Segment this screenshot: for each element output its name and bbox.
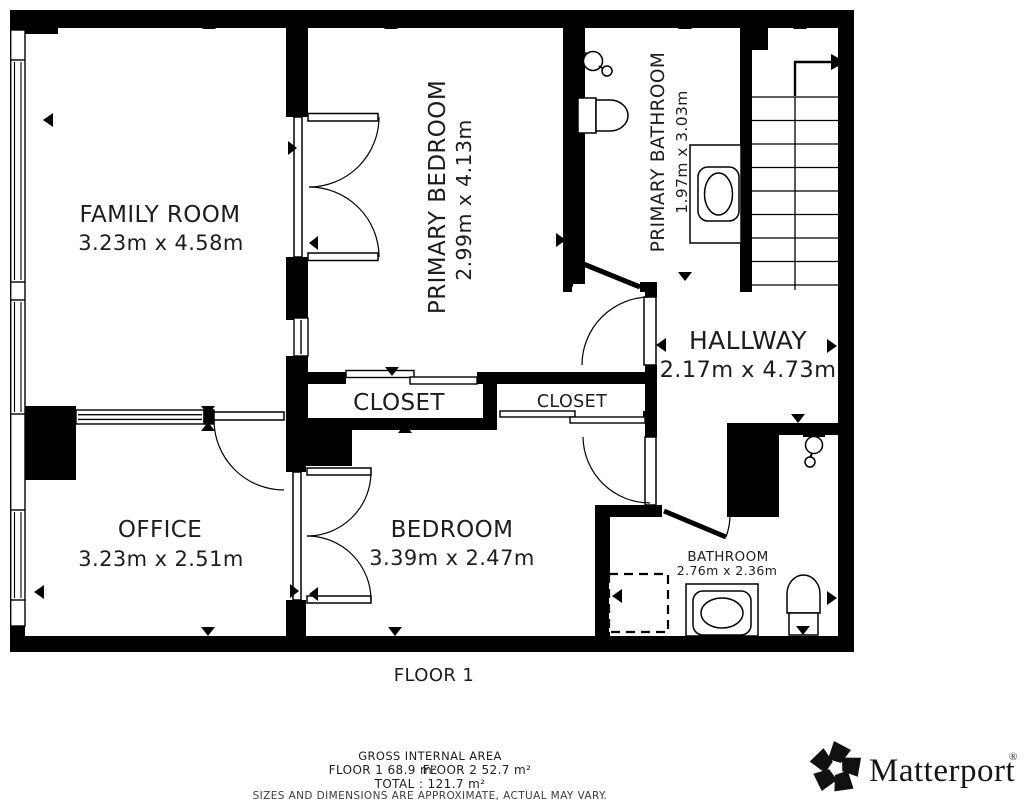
room-label-hallway: HALLWAY [689, 326, 807, 355]
gross-area-title: GROSS INTERNAL AREA [358, 749, 502, 763]
registered-mark: ® [1009, 751, 1018, 763]
room-label-primary-bedroom: PRIMARY BEDROOM [425, 80, 451, 314]
room-dims-office: 3.23m x 2.51m [78, 547, 243, 571]
room-label-closet-small: CLOSET [537, 392, 607, 412]
primary-bedroom-door [582, 297, 656, 365]
disclaimer: SIZES AND DIMENSIONS ARE APPROXIMATE, AC… [253, 790, 608, 800]
total-area: TOTAL : 121.7 m² [374, 777, 486, 791]
shower-head-icon [584, 52, 613, 77]
floor-plan-page: FAMILY ROOM 3.23m x 4.58m PRIMARY BEDROO… [0, 0, 1024, 800]
office-window [76, 410, 204, 424]
bathroom-door [664, 511, 730, 537]
matterport-pinwheel-icon [808, 741, 866, 799]
french-door-primary-bedroom [294, 114, 379, 261]
matterport-logo: Matterport ® [808, 741, 1018, 799]
marker-down-icon [791, 414, 805, 423]
room-dims-primary-bedroom: 2.99m x 4.13m [452, 119, 476, 281]
floor-caption: FLOOR 1 [394, 665, 475, 686]
interior-windows [76, 318, 308, 424]
floor2-area: FLOOR 2 52.7 m² [423, 763, 532, 777]
sink-vanity-icon-bathroom [686, 584, 758, 636]
sink-vanity-icon-primary [690, 145, 741, 243]
room-dims-family-room: 3.23m x 4.58m [78, 231, 243, 255]
shower-head-icon-bathroom [803, 436, 825, 467]
matterport-wordmark: Matterport [869, 753, 1015, 789]
room-dims-hallway: 2.17m x 4.73m [660, 357, 837, 383]
marker-left-icon [656, 338, 666, 352]
office-door [214, 412, 284, 490]
marker-down-icon [388, 627, 402, 636]
french-door-bedroom [293, 468, 371, 603]
marker-right-icon [827, 339, 837, 353]
marker-left-icon [309, 236, 318, 250]
shower-tray-icon [609, 574, 668, 632]
marker-down-icon [201, 627, 215, 636]
marker-down-icon [678, 272, 692, 281]
room-dims-primary-bathroom: 1.97m x 3.03m [673, 90, 691, 213]
left-window-wall [10, 30, 25, 626]
room-dims-bathroom: 2.76m x 2.36m [677, 563, 778, 578]
floor-plan-drawing: FAMILY ROOM 3.23m x 4.58m PRIMARY BEDROO… [0, 0, 1024, 800]
bedroom-door [583, 437, 656, 505]
room-label-office: OFFICE [118, 517, 202, 543]
floor1-area: FLOOR 1 68.9 m² [329, 763, 438, 777]
room-label-bedroom: BEDROOM [391, 517, 514, 543]
staircase [752, 54, 846, 290]
toilet-icon-primary [578, 98, 628, 133]
room-dims-bedroom: 3.39m x 2.47m [369, 546, 534, 570]
marker-right-icon [827, 591, 837, 605]
marker-left-icon [43, 113, 53, 127]
room-label-family-room: FAMILY ROOM [79, 202, 240, 228]
area-summary: GROSS INTERNAL AREA FLOOR 1 68.9 m² FLOO… [253, 749, 608, 800]
room-label-primary-bathroom: PRIMARY BATHROOM [648, 52, 669, 252]
marker-left-icon [34, 585, 44, 599]
room-label-closet-large: CLOSET [353, 390, 445, 416]
room-labels: FAMILY ROOM 3.23m x 4.58m PRIMARY BEDROO… [78, 52, 836, 578]
